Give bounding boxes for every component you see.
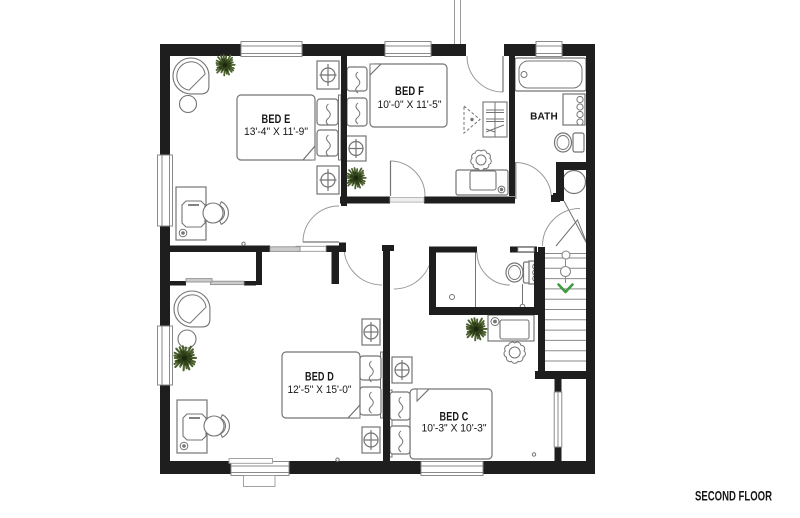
svg-text:10'-0" X 11'-5": 10'-0" X 11'-5" [378, 99, 442, 111]
svg-text:BATH: BATH [530, 112, 558, 123]
svg-text:13'-4" X 11'-9": 13'-4" X 11'-9" [244, 126, 308, 138]
svg-text:12'-5" X 15'-0": 12'-5" X 15'-0" [288, 384, 352, 396]
svg-text:BED D: BED D [305, 372, 334, 384]
svg-text:BED F: BED F [395, 86, 424, 98]
svg-text:10'-3" X 10'-3": 10'-3" X 10'-3" [422, 423, 487, 435]
svg-text:BED E: BED E [262, 114, 291, 126]
svg-text:SECOND FLOOR: SECOND FLOOR [695, 488, 772, 504]
